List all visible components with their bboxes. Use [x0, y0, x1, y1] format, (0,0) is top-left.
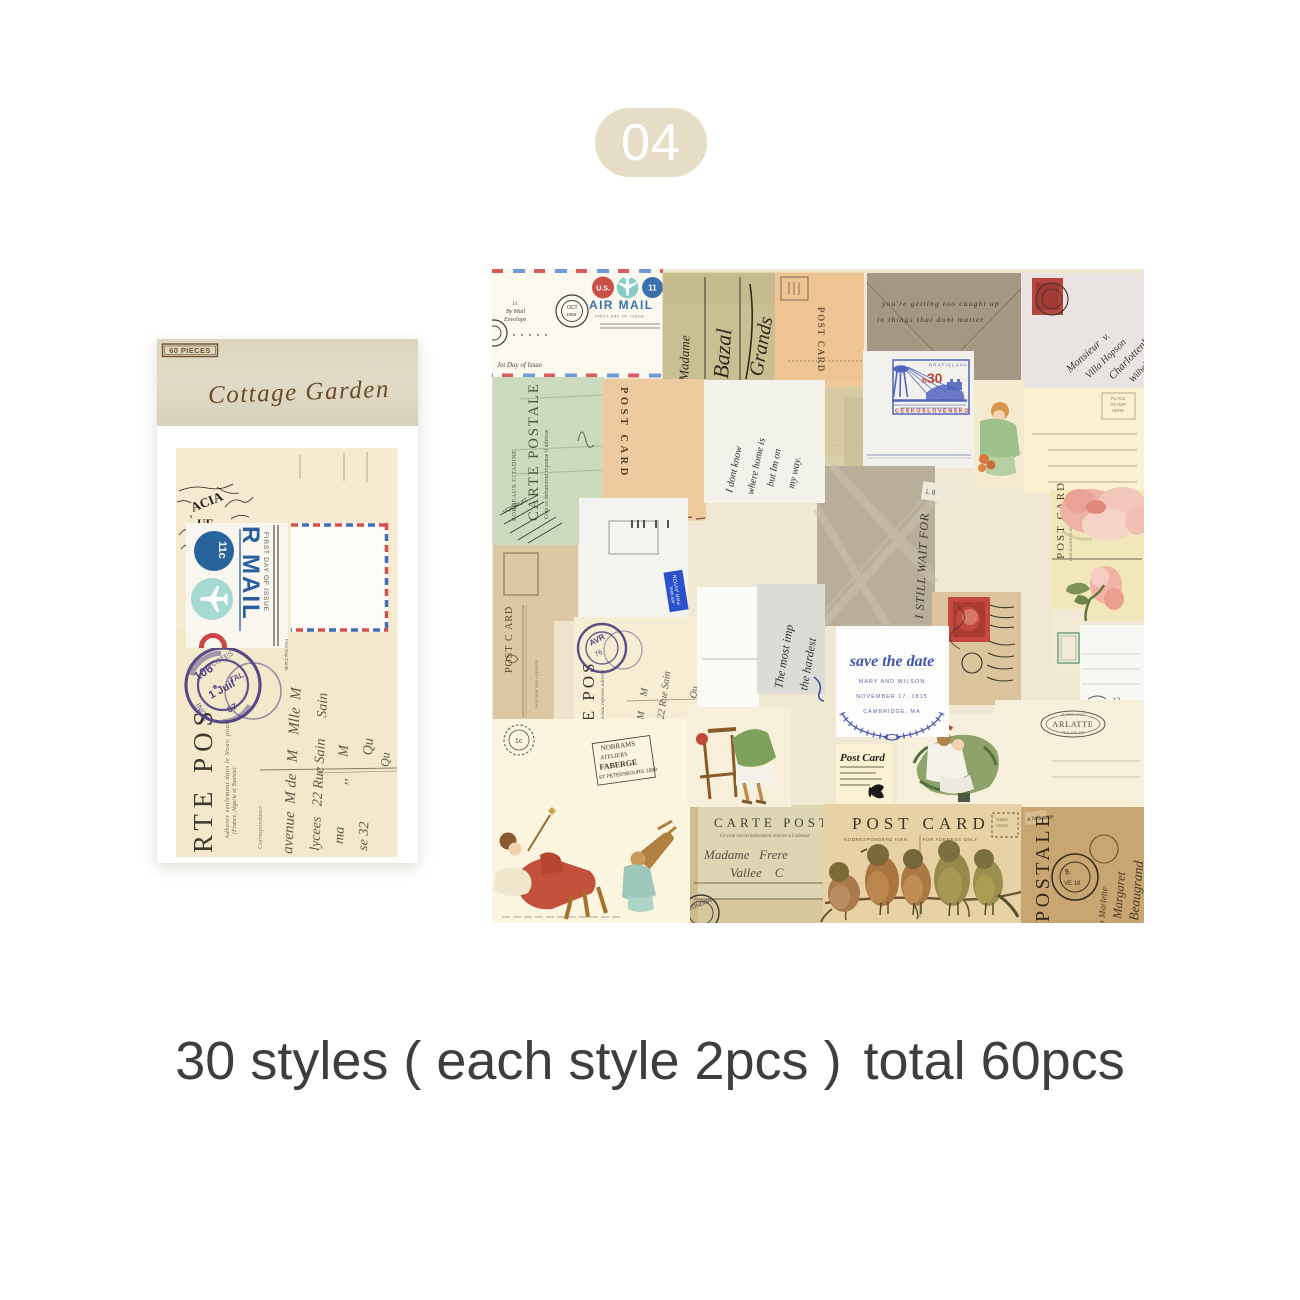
- svg-text:KODRESPONDENZ HIER FOR: KODRESPONDENZ HIER FOR ADDRESS ONLY: [844, 837, 978, 842]
- svg-text:you're getting too caught up: you're getting too caught up: [881, 299, 1000, 308]
- svg-text:(France, Algerie et Tunisie): (France, Algerie et Tunisie): [231, 767, 238, 834]
- svg-text:Vallee C: Vallee C: [730, 865, 784, 880]
- svg-text:THIS SIDE FOR ADDRESS: THIS SIDE FOR ADDRESS: [534, 659, 539, 709]
- svg-text:Ce cote est exclusivement rese: Ce cote est exclusivement reserve a l'ad…: [720, 834, 810, 839]
- svg-text:STAMP: STAMP: [1110, 402, 1125, 407]
- svg-text:AU BON GOUT: AU BON GOUT: [1061, 713, 1086, 717]
- svg-text:60 PIECES: 60 PIECES: [169, 346, 211, 355]
- svg-text:13: 13: [512, 302, 518, 307]
- svg-text:THREE: THREE: [996, 818, 1009, 822]
- svg-text:Madame: Madame: [676, 335, 693, 382]
- svg-text:11: 11: [648, 284, 657, 293]
- svg-text:1958: 1958: [566, 312, 577, 317]
- svg-text:Jet Day of Issue: Jet Day of Issue: [497, 361, 542, 369]
- svg-text:Bazal: Bazal: [708, 328, 736, 380]
- svg-text:POST CARD: POST CARD: [852, 814, 990, 833]
- svg-text:Madame Frere: Madame Frere: [703, 847, 788, 862]
- svg-text:BRATISLAVA: BRATISLAVA: [929, 363, 968, 368]
- svg-text:U.S.: U.S.: [596, 286, 610, 293]
- svg-text:L 8: L 8: [925, 489, 935, 497]
- svg-text:Envelope: Envelope: [503, 317, 527, 323]
- svg-text:VE 18: VE 18: [1064, 881, 1081, 887]
- svg-text:First Day Cards: First Day Cards: [284, 639, 289, 671]
- svg-text:CESKOSLOVENSKO: CESKOSLOVENSKO: [895, 409, 970, 415]
- svg-text:RTE POS: RTE POS: [188, 705, 218, 853]
- svg-text:Cote ce debuteront reponse il: Cote ce debuteront reponse il adresse: [544, 429, 550, 519]
- svg-text:1c: 1c: [515, 738, 523, 745]
- svg-text:CAMBRIDGE, MA: CAMBRIDGE, MA: [863, 709, 921, 715]
- svg-text:OCT: OCT: [567, 305, 578, 311]
- svg-text:POST CARD: POST CARD: [816, 307, 826, 373]
- svg-text:save the date: save the date: [849, 653, 934, 670]
- svg-text:ARLATTE: ARLATTE: [1052, 720, 1093, 729]
- svg-text:11c: 11c: [216, 541, 228, 559]
- svg-text:Post Card: Post Card: [840, 752, 885, 764]
- svg-text:Adherer seulement dans le Nouv: Adherer seulement dans le Nouv. pour: [224, 722, 231, 840]
- svg-text:FILS AND CIE: FILS AND CIE: [1062, 731, 1085, 735]
- svg-text:NOVEMBER 17, 1815: NOVEMBER 17, 1815: [856, 694, 927, 700]
- svg-text:MARY AND WILSON: MARY AND WILSON: [859, 679, 926, 685]
- svg-text:POST CARD: POST CARD: [618, 387, 629, 479]
- svg-text:AIR MAIL: AIR MAIL: [589, 298, 654, 312]
- svg-text:HERE: HERE: [1112, 408, 1125, 413]
- svg-text:POSTALE: POSTALE: [1032, 811, 1054, 922]
- svg-text:CENTS: CENTS: [996, 824, 1009, 828]
- svg-text:By Mail: By Mail: [506, 309, 525, 315]
- svg-text:in things that dont matter: in things that dont matter: [877, 315, 984, 324]
- svg-text:Correspondance: Correspondance: [257, 806, 264, 849]
- svg-text:FIRST DAY OF ISSUE: FIRST DAY OF ISSUE: [595, 314, 644, 319]
- svg-text:R MAIL: R MAIL: [237, 526, 264, 621]
- svg-text:PLACE: PLACE: [1111, 396, 1126, 401]
- svg-text:FIRST DAY OF ISSUE: FIRST DAY OF ISSUE: [262, 532, 269, 612]
